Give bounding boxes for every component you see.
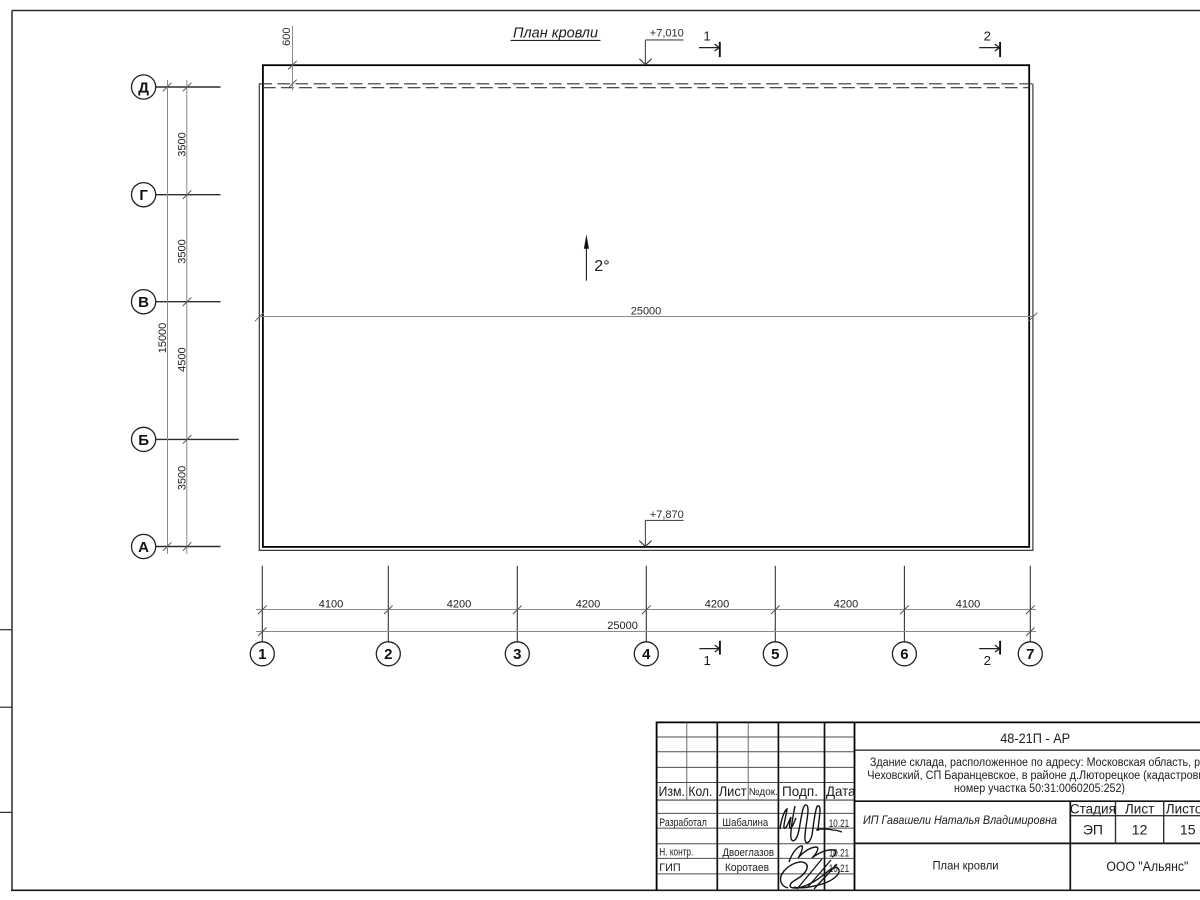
svg-text:А: А xyxy=(138,539,149,556)
svg-text:6: 6 xyxy=(900,646,908,663)
svg-text:ИП Гавашели Наталья Владимиров: ИП Гавашели Наталья Владимировна xyxy=(863,813,1057,827)
svg-text:2: 2 xyxy=(384,646,392,663)
svg-text:4200: 4200 xyxy=(705,599,729,611)
svg-text:Изм.: Изм. xyxy=(658,783,685,799)
svg-text:4100: 4100 xyxy=(319,599,343,611)
svg-text:ООО "Альянс": ООО "Альянс" xyxy=(1106,859,1188,874)
svg-text:4: 4 xyxy=(642,646,651,663)
svg-text:Шабалина: Шабалина xyxy=(722,817,769,829)
svg-text:Разработал: Разработал xyxy=(659,817,707,829)
svg-text:+7,870: +7,870 xyxy=(650,509,684,521)
svg-text:Д: Д xyxy=(138,79,149,96)
svg-text:4200: 4200 xyxy=(834,599,858,611)
svg-text:1: 1 xyxy=(258,646,266,663)
svg-text:15000: 15000 xyxy=(157,323,169,354)
svg-text:7: 7 xyxy=(1026,646,1034,663)
svg-text:3500: 3500 xyxy=(176,239,188,263)
svg-text:1: 1 xyxy=(703,29,710,44)
svg-text:2°: 2° xyxy=(594,258,609,275)
svg-text:Б: Б xyxy=(138,432,149,449)
svg-text:4500: 4500 xyxy=(176,347,188,371)
svg-text:4200: 4200 xyxy=(447,599,471,611)
svg-text:Двоеглазов: Двоеглазов xyxy=(723,847,775,859)
svg-text:3500: 3500 xyxy=(176,466,188,490)
svg-text:Н. контр.: Н. контр. xyxy=(659,847,693,859)
svg-text:Здание склада, расположенное п: Здание склада, расположенное по адресу: … xyxy=(870,757,1200,769)
svg-text:4200: 4200 xyxy=(576,599,600,611)
svg-text:Листов: Листов xyxy=(1166,802,1200,817)
svg-text:4100: 4100 xyxy=(956,599,980,611)
svg-text:В: В xyxy=(138,294,149,311)
svg-text:Г: Г xyxy=(139,187,148,204)
svg-text:48-21П - АР: 48-21П - АР xyxy=(1000,730,1070,746)
svg-text:15: 15 xyxy=(1180,822,1196,838)
svg-text:3: 3 xyxy=(513,646,521,663)
svg-text:№док.: №док. xyxy=(749,787,778,798)
svg-text:+7,010: +7,010 xyxy=(650,28,684,40)
svg-text:5: 5 xyxy=(771,646,779,663)
svg-text:25000: 25000 xyxy=(631,305,662,317)
svg-text:12: 12 xyxy=(1132,822,1148,838)
svg-text:2: 2 xyxy=(984,653,991,668)
svg-text:2: 2 xyxy=(984,29,991,44)
svg-text:10.21: 10.21 xyxy=(829,818,849,830)
svg-text:номер участка 50:31:0060205:25: номер участка 50:31:0060205:252) xyxy=(954,783,1125,795)
svg-text:ГИП: ГИП xyxy=(659,862,680,874)
svg-text:План кровли: План кровли xyxy=(513,26,598,42)
svg-text:25000: 25000 xyxy=(607,620,638,632)
svg-text:Лист: Лист xyxy=(719,783,748,799)
svg-text:Подп.: Подп. xyxy=(782,783,818,799)
svg-text:План кровли: План кровли xyxy=(933,859,999,873)
svg-text:1: 1 xyxy=(704,653,711,668)
svg-text:600: 600 xyxy=(281,28,293,46)
svg-text:Чеховский, СП Баранцевское, в: Чеховский, СП Баранцевское, в районе д.Л… xyxy=(867,770,1200,782)
svg-text:Кол.: Кол. xyxy=(688,783,712,799)
svg-text:ЭП: ЭП xyxy=(1083,822,1103,838)
svg-text:Стадия: Стадия xyxy=(1070,802,1116,817)
svg-text:3500: 3500 xyxy=(176,132,188,156)
svg-text:Лист: Лист xyxy=(1125,802,1154,817)
svg-text:Дата: Дата xyxy=(826,783,856,799)
svg-text:Коротаев: Коротаев xyxy=(725,862,769,874)
